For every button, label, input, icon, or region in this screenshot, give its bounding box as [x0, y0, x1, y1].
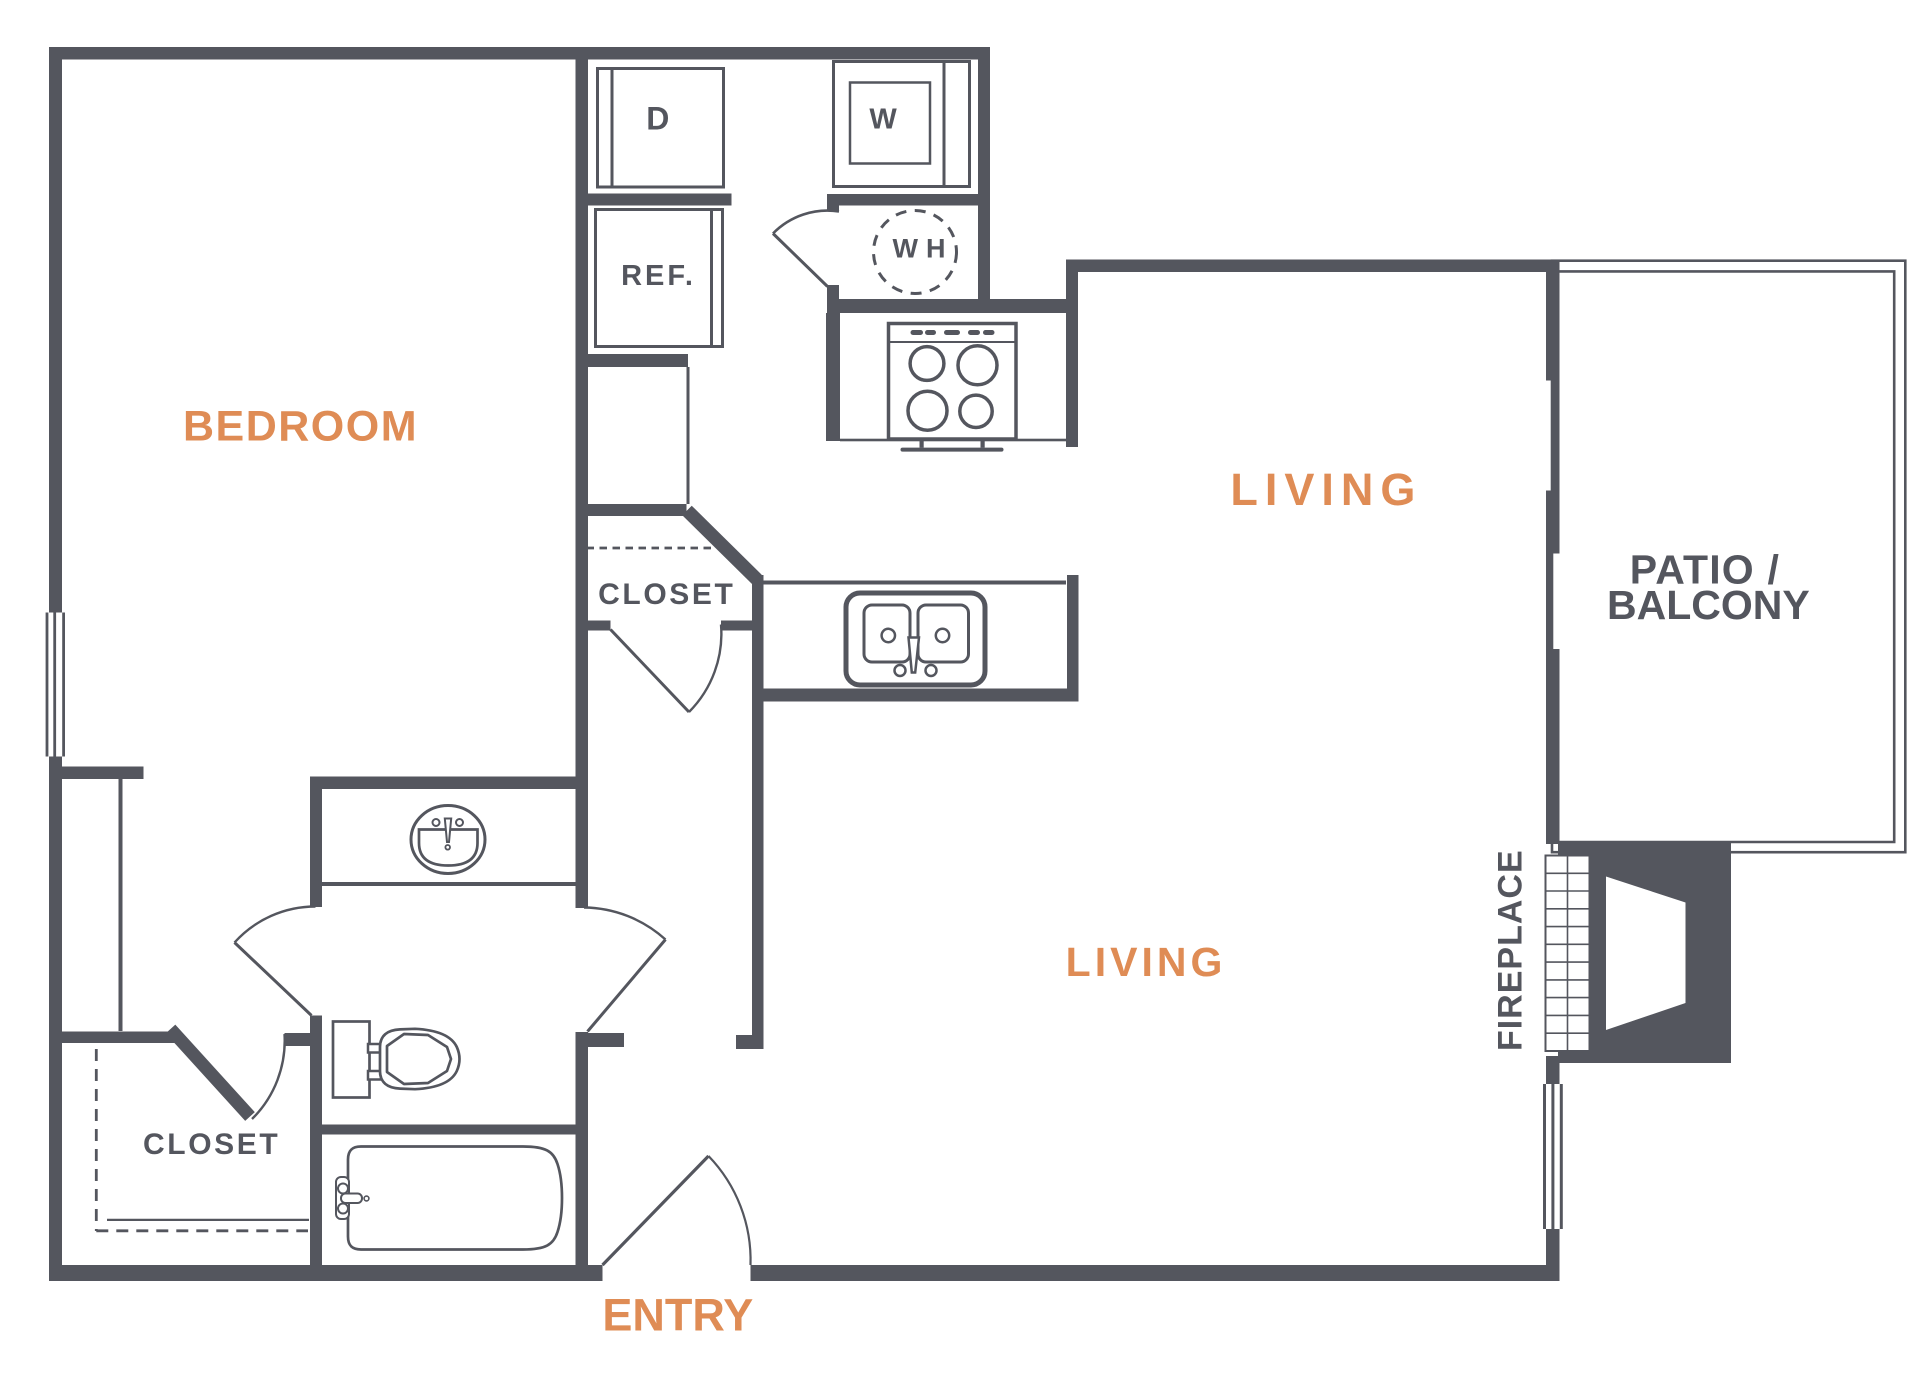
svg-text:REF.: REF. — [621, 260, 696, 292]
svg-text:W: W — [869, 104, 897, 136]
svg-text:ENTRY: ENTRY — [602, 1290, 753, 1341]
svg-text:LIVING: LIVING — [1066, 939, 1227, 985]
svg-text:D: D — [646, 101, 669, 137]
svg-text:CLOSET: CLOSET — [143, 1128, 280, 1161]
svg-text:LIVING: LIVING — [1230, 464, 1422, 515]
svg-text:CLOSET: CLOSET — [598, 578, 735, 611]
svg-text:BALCONY: BALCONY — [1607, 582, 1810, 628]
svg-text:FIREPLACE: FIREPLACE — [1492, 849, 1530, 1051]
svg-text:WH: WH — [893, 234, 954, 264]
svg-text:BEDROOM: BEDROOM — [183, 403, 418, 451]
